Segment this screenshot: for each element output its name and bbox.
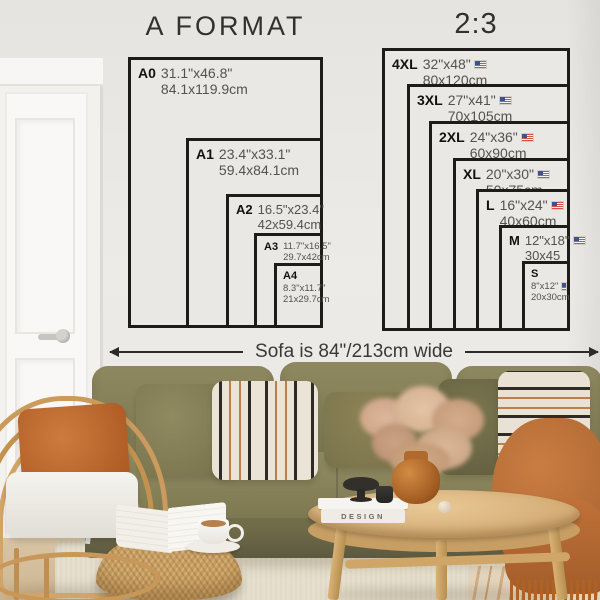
size-name: L: [486, 197, 495, 229]
size-box-a1: A1 23.4"x33.1" 59.4x84.1cm A2 16.5"x23.4…: [186, 138, 323, 328]
black-cup: [376, 486, 393, 503]
arrow-left-icon: [109, 347, 119, 357]
size-inches: 12"x18": [525, 233, 570, 248]
size-inches: 32"x48": [423, 56, 471, 72]
size-inches: 27"x41": [448, 92, 496, 108]
size-name: 2XL: [439, 129, 465, 161]
size-cm: 21x29.7cm: [283, 294, 329, 305]
size-inches: 24"x36": [470, 129, 518, 145]
a-format-title: A FORMAT: [128, 11, 323, 42]
table-leg: [436, 540, 447, 600]
sofa-width-measure: Sofa is 84"/213cm wide: [110, 341, 598, 363]
size-cm: 29.7x42cm: [283, 252, 329, 263]
size-name: S: [531, 268, 567, 281]
size-name: 3XL: [417, 92, 443, 124]
size-box-a3: A3 11.7"x16.5" 29.7x42cm A4 8.3"x11.7" 2…: [254, 233, 323, 328]
open-book-left-page: [116, 505, 172, 554]
size-box-l: L 16"x24" 40x60cm M 12"x18": [476, 189, 570, 331]
door-handle-rosette: [56, 329, 70, 343]
size-name: A4: [283, 270, 320, 283]
size-box-xl: XL 20"x30" 50x75cm L 16"x24" 40x60cm: [453, 158, 570, 331]
size-label-a1: A1 23.4"x33.1" 59.4x84.1cm: [189, 141, 320, 178]
us-flag-icon: [474, 60, 487, 69]
size-label-2xl: 2XL 24"x36" 60x90cm: [432, 124, 567, 161]
size-label-l: L 16"x24" 40x60cm: [479, 192, 567, 229]
size-box-a0: A0 31.1"x46.8" 84.1x119.9cm A1 23.4"x33.…: [128, 57, 323, 328]
size-label-a3: A3 11.7"x16.5" 29.7x42cm: [257, 236, 320, 263]
size-cm: 20x30cm: [531, 292, 570, 303]
size-cm: 84.1x119.9cm: [161, 81, 248, 97]
size-inches: 20"x30": [486, 166, 534, 182]
size-inches: 16"x24": [500, 197, 548, 213]
arrow-right-icon: [589, 347, 599, 357]
us-flag-icon: [499, 96, 512, 105]
design-book-title: DESIGN: [341, 512, 385, 521]
wooden-ball: [438, 501, 451, 513]
size-inches: 16.5"x23.4": [258, 202, 324, 217]
size-box-4xl: 4XL 32"x48" 80x120cm 3XL 27"x41" 70x105c…: [382, 48, 570, 331]
size-inches: 23.4"x33.1": [219, 146, 290, 162]
size-label-4xl: 4XL 32"x48" 80x120cm: [385, 51, 567, 88]
size-label-a2: A2 16.5"x23.4" 42x59.4cm: [229, 197, 320, 232]
size-label-a0: A0 31.1"x46.8" 84.1x119.9cm: [131, 60, 320, 97]
size-name: A1: [196, 146, 214, 178]
size-box-s: S 8"x12" 20x30cm: [522, 261, 570, 331]
door-lintel: [0, 58, 103, 86]
us-flag-icon: [561, 282, 567, 291]
size-inches: 11.7"x16.5": [283, 241, 331, 252]
size-inches: 8"x12": [531, 281, 558, 292]
coffee-surface: [201, 520, 226, 527]
size-box-a2: A2 16.5"x23.4" 42x59.4cm A3 11.7"x16.5" …: [226, 194, 323, 328]
size-cm: 59.4x84.1cm: [219, 162, 299, 178]
size-inches: 8.3"x11.7": [283, 283, 326, 294]
us-flag-icon: [551, 201, 564, 210]
size-box-2xl: 2XL 24"x36" 60x90cm XL 20"x30" 50x75cm: [429, 121, 570, 331]
size-box-m: M 12"x18" 30x45 S 8"x12": [499, 225, 570, 331]
measure-line-left: [110, 351, 243, 353]
striped-pillow: [212, 381, 318, 480]
size-name: A2: [236, 202, 253, 232]
size-cm: 42x59.4cm: [258, 217, 322, 232]
design-book: DESIGN: [321, 509, 405, 523]
size-inches: 31.1"x46.8": [161, 65, 232, 81]
size-name: A3: [264, 241, 278, 263]
size-label-3xl: 3XL 27"x41" 70x105cm: [410, 87, 567, 124]
black-bowl-base: [350, 497, 372, 502]
amber-glass-vase: [392, 459, 440, 504]
rattan-chair-runner: [0, 552, 160, 600]
measure-line-right: [465, 351, 598, 353]
size-label-a4: A4 8.3"x11.7" 21x29.7cm: [277, 266, 320, 305]
us-flag-icon: [521, 133, 534, 142]
size-name: A0: [138, 65, 156, 97]
size-name: M: [509, 233, 520, 263]
size-label-s: S 8"x12" 20x30cm: [525, 264, 567, 303]
us-flag-icon: [573, 236, 586, 245]
us-flag-icon: [537, 170, 550, 179]
size-label-m: M 12"x18" 30x45: [502, 228, 567, 263]
poster-size-guide-scene: A FORMAT A0 31.1"x46.8" 84.1x119.9cm A1 …: [0, 0, 600, 600]
ratio-title: 2:3: [382, 8, 570, 41]
sofa-width-label: Sofa is 84"/213cm wide: [255, 341, 453, 363]
size-box-a4: A4 8.3"x11.7" 21x29.7cm: [274, 263, 323, 328]
door-panel-top: [15, 118, 75, 334]
size-box-3xl: 3XL 27"x41" 70x105cm 2XL 24"x36" 60x90cm…: [407, 84, 570, 331]
